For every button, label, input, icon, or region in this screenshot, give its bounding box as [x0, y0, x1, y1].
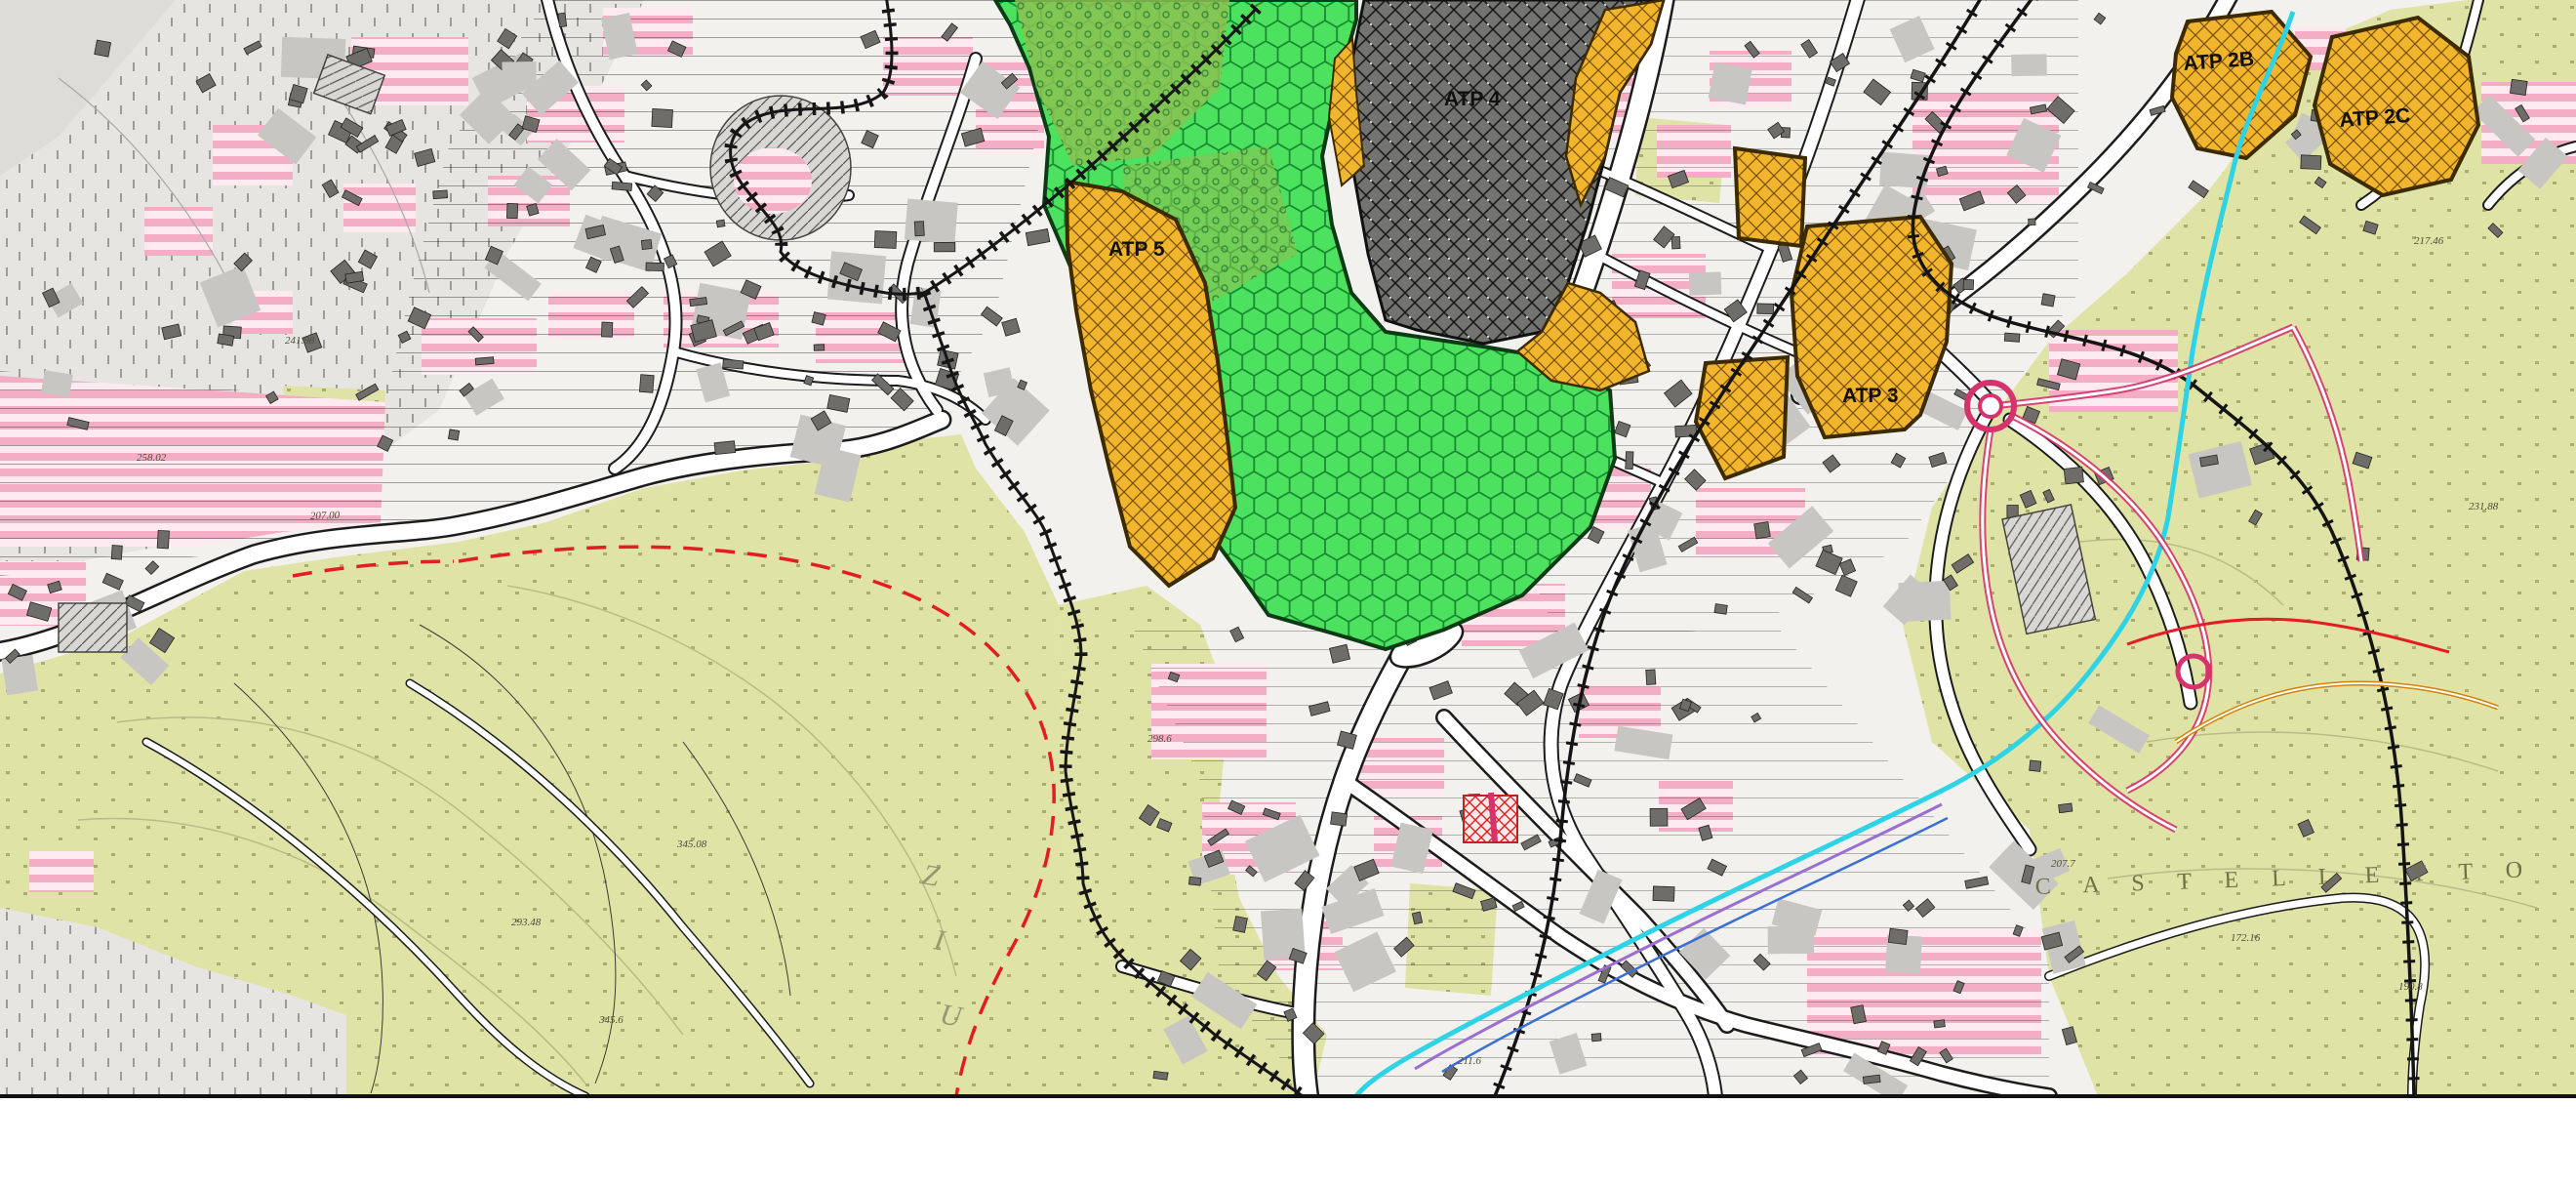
- building-footprint: [2064, 467, 2083, 484]
- label-elevations: 207.00: [310, 510, 341, 522]
- label-elevations: 190.8: [2398, 981, 2423, 993]
- building-footprint: [1653, 886, 1674, 901]
- zone-label-atp4: ATP 4: [1444, 88, 1501, 110]
- building-footprint: [934, 242, 955, 252]
- building-footprint: [2510, 79, 2527, 95]
- map-sheet: ATP 4ATP 5ATP 3ATP 2BATP 2CC A S T E L L…: [0, 0, 2576, 1186]
- label-elevations: 258.02: [137, 452, 167, 464]
- building-footprint: [1188, 877, 1201, 885]
- building-footprint: [448, 429, 459, 440]
- building-footprint: [433, 190, 448, 199]
- building-footprint: [2004, 333, 2020, 342]
- building-footprint: [475, 357, 494, 365]
- urban-block: [2011, 54, 2047, 76]
- building-footprint: [1754, 522, 1771, 539]
- urban-block: [2, 655, 38, 695]
- zone-label-atp3: ATP 3: [1842, 385, 1899, 407]
- building-footprint: [1233, 917, 1248, 933]
- building-footprint: [646, 263, 664, 271]
- building-footprint: [1153, 1071, 1168, 1080]
- building-footprint: [1650, 808, 1668, 826]
- building-footprint: [558, 13, 567, 26]
- label-elevations: 241.98: [285, 335, 315, 347]
- label-elevations: 345.6: [598, 1014, 624, 1026]
- urban-block: [1709, 62, 1752, 105]
- building-footprint: [1675, 425, 1697, 437]
- label-elevations: 231.88: [2469, 501, 2499, 512]
- building-footprint: [1888, 928, 1908, 944]
- building-footprint: [111, 546, 122, 560]
- building-footprint: [714, 441, 736, 455]
- building-footprint: [1714, 604, 1727, 615]
- building-footprint: [1646, 670, 1656, 684]
- building-footprint: [1626, 452, 1633, 470]
- building-footprint: [812, 312, 825, 325]
- building-footprint: [1963, 279, 1974, 289]
- urban-block: [502, 61, 536, 85]
- building-footprint: [601, 322, 612, 337]
- building-footprint: [2301, 155, 2321, 170]
- building-footprint: [641, 240, 652, 250]
- building-footprint: [1331, 812, 1348, 826]
- building-footprint: [2059, 803, 2073, 813]
- building-footprint: [652, 108, 673, 127]
- crimson-mark: [1491, 793, 1495, 841]
- building-footprint: [716, 220, 725, 227]
- sheet-margin: [0, 1096, 2576, 1186]
- atp-upper-zone: [1735, 148, 1805, 246]
- label-elevations: 345.08: [676, 838, 707, 850]
- building-footprint: [1757, 304, 1774, 314]
- building-footprint: [506, 203, 517, 218]
- building-footprint: [95, 40, 111, 57]
- map-content: ATP 4ATP 5ATP 3ATP 2BATP 2CC A S T E L L…: [0, 0, 2576, 1104]
- building-footprint: [2029, 219, 2035, 225]
- building-footprint: [723, 359, 744, 369]
- label-elevations: 217.46: [2414, 235, 2444, 247]
- building-footprint: [1671, 236, 1680, 249]
- building-footprint: [639, 375, 654, 393]
- building-footprint: [914, 222, 924, 236]
- roundabout-core: [1980, 395, 2001, 417]
- building-footprint: [2030, 760, 2041, 772]
- building-footprint: [157, 530, 169, 549]
- building-footprint: [1934, 1020, 1945, 1028]
- building-footprint: [1863, 1075, 1880, 1084]
- map-canvas: ATP 4ATP 5ATP 3ATP 2BATP 2CC A S T E L L…: [0, 0, 2576, 1186]
- label-elevations: 293.48: [511, 917, 542, 928]
- zone-label-atp5: ATP 5: [1108, 238, 1165, 261]
- urban-block: [905, 198, 958, 243]
- building-footprint: [218, 334, 234, 346]
- label-elevations: 298.6: [1147, 733, 1172, 745]
- urban-block: [41, 370, 73, 397]
- label-elevations: 172.16: [2231, 932, 2261, 944]
- building-footprint: [1591, 1034, 1601, 1042]
- building-footprint: [612, 182, 632, 190]
- building-footprint: [814, 345, 825, 350]
- urban-block: [1689, 272, 1722, 296]
- label-elevations: 207.7: [2051, 858, 2075, 870]
- building-footprint: [874, 231, 897, 249]
- label-elevations: 211.6: [1458, 1055, 1481, 1067]
- building-footprint: [2041, 294, 2055, 307]
